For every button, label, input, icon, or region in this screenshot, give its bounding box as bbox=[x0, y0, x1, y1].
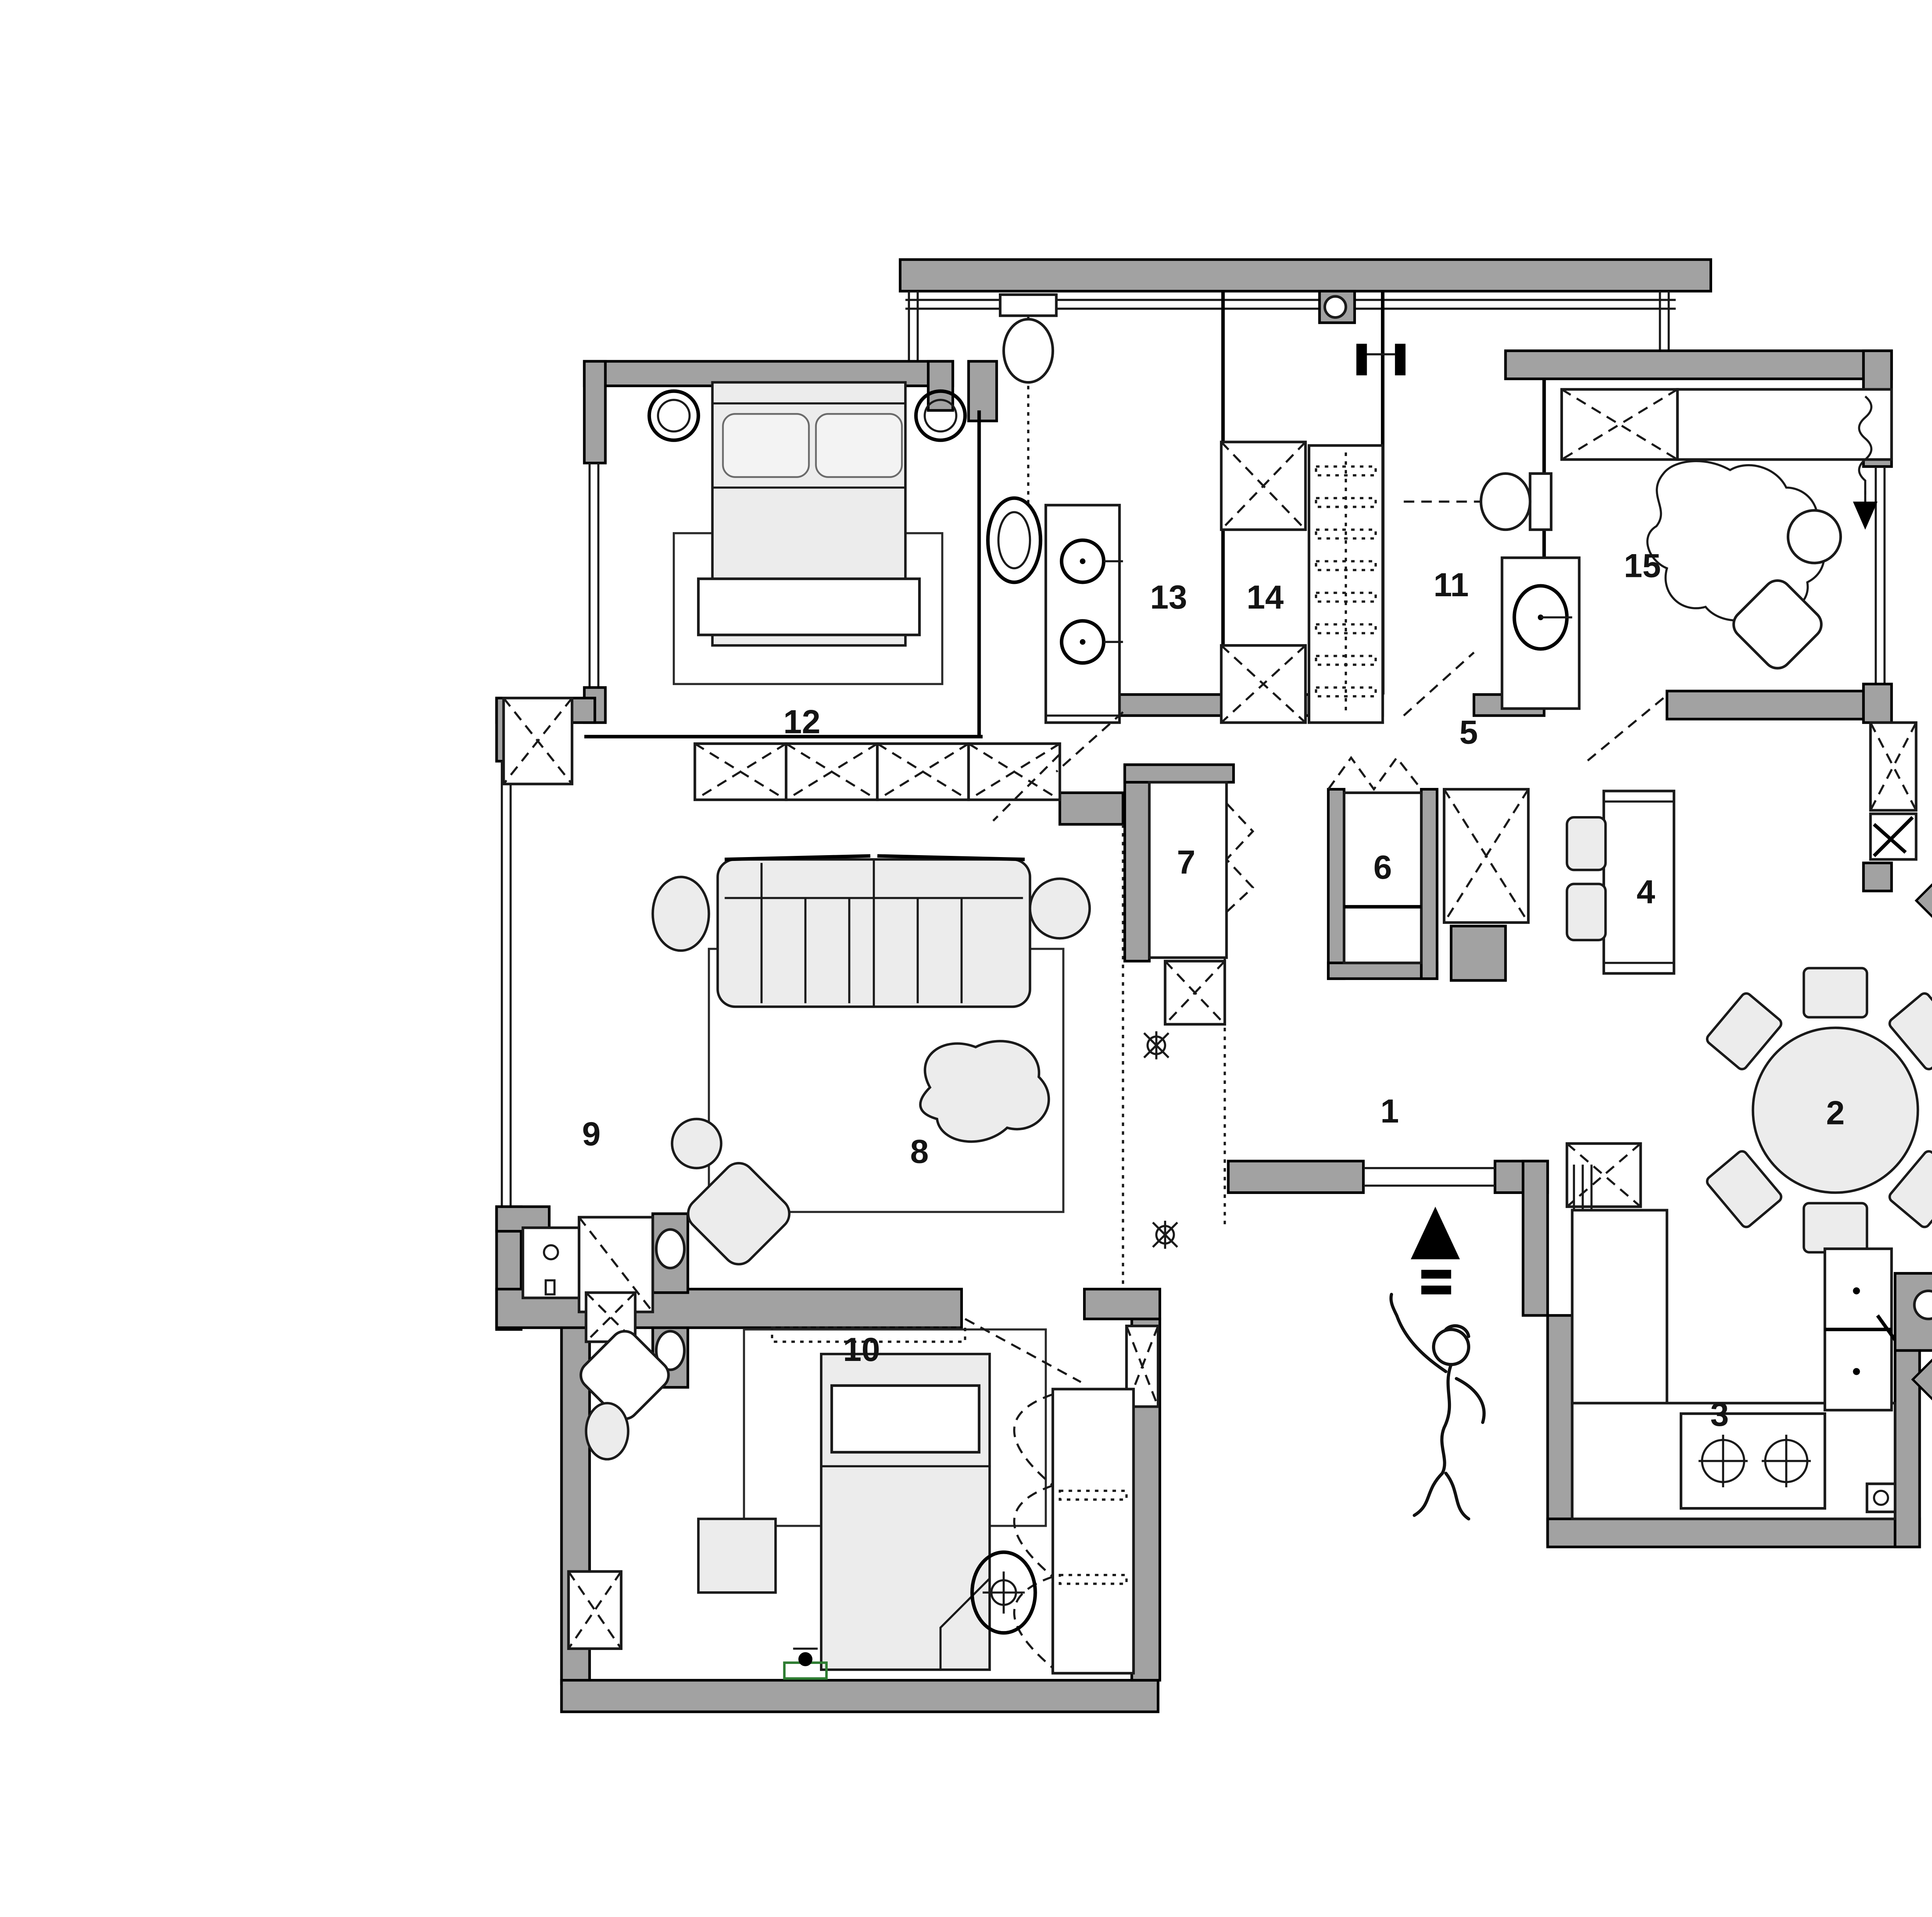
fridge bbox=[1825, 1249, 1895, 1410]
single-bed bbox=[821, 1354, 990, 1670]
closet-hatch bbox=[1444, 789, 1528, 923]
room-label-7: 7 bbox=[1177, 844, 1196, 881]
room-label-5: 5 bbox=[1459, 714, 1478, 751]
toilet-bowl bbox=[1000, 295, 1056, 383]
bed-bench bbox=[698, 579, 919, 635]
closet-hatch bbox=[786, 743, 877, 799]
chair bbox=[1804, 968, 1867, 1017]
cat-house bbox=[1125, 765, 1253, 1024]
ceiling-light bbox=[1153, 1221, 1178, 1249]
toilet-bowl bbox=[1481, 474, 1551, 530]
entry-arrow-down bbox=[1853, 491, 1878, 530]
closet-hatch bbox=[503, 698, 572, 784]
room-label-15: 15 bbox=[1624, 547, 1661, 584]
storage-side-block bbox=[1451, 926, 1505, 981]
toilet-11-fixtures bbox=[1481, 474, 1579, 709]
double-door-swing bbox=[1328, 758, 1422, 789]
entry-arrow-up bbox=[1411, 1207, 1460, 1259]
room-label-9: 9 bbox=[582, 1116, 600, 1153]
room-label-10: 10 bbox=[843, 1331, 880, 1368]
cooktop bbox=[1681, 1414, 1825, 1508]
washing-machine bbox=[523, 1228, 579, 1298]
double-bed bbox=[698, 382, 919, 645]
western-kitchen-island bbox=[1567, 791, 1674, 973]
room-label-3: 3 bbox=[1710, 1396, 1729, 1433]
closet-hatch bbox=[1221, 442, 1306, 530]
closet-hatch bbox=[695, 743, 786, 799]
chair bbox=[1804, 1203, 1867, 1252]
vanity bbox=[1502, 558, 1579, 708]
room-label-1: 1 bbox=[1381, 1093, 1399, 1130]
floorplan-page: 1 2 3 4 5 6 7 8 9 10 11 12 13 14 15 1 門廳… bbox=[0, 0, 1932, 1917]
pouf-round bbox=[672, 1119, 721, 1168]
stool bbox=[1567, 817, 1605, 870]
stage: 1 2 3 4 5 6 7 8 9 10 11 12 13 14 15 1 門廳… bbox=[0, 0, 1932, 1917]
living-room-furniture bbox=[653, 856, 1090, 1271]
pouf-oval bbox=[586, 1403, 628, 1459]
counter-left bbox=[1572, 1210, 1667, 1407]
side-table bbox=[1030, 879, 1090, 938]
shoe-cabinet bbox=[1871, 814, 1916, 859]
wardrobe bbox=[1014, 1389, 1134, 1673]
girls-room-furniture bbox=[575, 1319, 1133, 1678]
room-label-6: 6 bbox=[1373, 849, 1392, 886]
closet-hatch bbox=[1567, 1143, 1641, 1206]
room-label-12: 12 bbox=[783, 703, 820, 740]
side-table bbox=[653, 877, 709, 951]
room-label-2: 2 bbox=[1826, 1094, 1845, 1131]
stool-round bbox=[1788, 510, 1840, 563]
person-figure bbox=[1391, 1294, 1484, 1519]
room-label-14: 14 bbox=[1247, 579, 1284, 616]
closet-hatch bbox=[1221, 645, 1306, 723]
toilet-13-fixtures bbox=[988, 295, 1123, 723]
stool bbox=[1567, 884, 1605, 940]
sofa bbox=[718, 856, 1030, 1007]
closet-hatch bbox=[969, 743, 1060, 799]
entry-marker bbox=[1411, 1207, 1460, 1294]
room-label-8: 8 bbox=[910, 1133, 929, 1170]
closet-hatch bbox=[1165, 961, 1225, 1024]
accordion-door bbox=[1226, 803, 1253, 912]
closet-hatch bbox=[568, 1572, 621, 1649]
multifunction-room-items bbox=[1647, 390, 1891, 674]
stool-square bbox=[1728, 575, 1827, 674]
cloakroom-rack bbox=[1309, 446, 1383, 723]
ceiling-light bbox=[1144, 1031, 1169, 1060]
double-door-top bbox=[1320, 291, 1406, 375]
closet-hatch bbox=[1562, 390, 1678, 460]
double-vanity bbox=[1046, 505, 1123, 723]
room-label-4: 4 bbox=[1637, 874, 1655, 911]
desk bbox=[698, 1519, 776, 1593]
closet-hatch bbox=[1871, 723, 1916, 810]
organic-coffee-table bbox=[920, 1041, 1049, 1141]
pouf-square bbox=[682, 1157, 796, 1271]
pedestal-basin bbox=[988, 498, 1041, 582]
nightstand-left bbox=[649, 391, 698, 440]
floorplan-drawing: 1 2 3 4 5 6 7 8 9 10 11 12 13 14 15 bbox=[0, 0, 1932, 1917]
master-bedroom-furniture bbox=[649, 382, 965, 684]
laundry-basin bbox=[656, 1230, 684, 1268]
room-label-13: 13 bbox=[1150, 579, 1187, 616]
room-label-11: 11 bbox=[1434, 566, 1469, 604]
sink-small bbox=[1867, 1484, 1895, 1512]
closet-hatch bbox=[878, 743, 969, 799]
dining-set bbox=[1705, 968, 1932, 1252]
